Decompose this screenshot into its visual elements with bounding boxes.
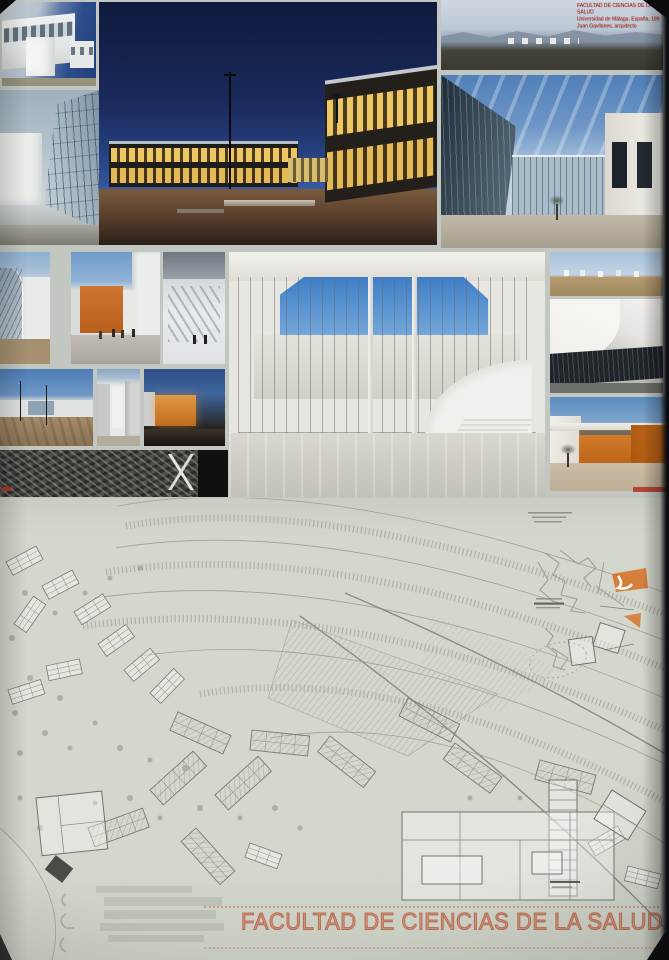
window-opening [612,142,627,188]
window-opening [637,142,652,188]
dirt-ground [0,339,50,364]
central-floor-plan [402,812,614,900]
dark-building-footprint [45,855,73,883]
small-tree [556,204,558,220]
site-plan-drawing [0,498,669,960]
paving [97,436,140,446]
column [412,277,417,434]
glowing-orange-wall [155,395,196,426]
photo-white-building-day [2,2,96,86]
credit-line-3: Juan Gavilanes, arquitecto [577,23,666,30]
curved-glass-wall [0,268,23,342]
photo-ceiling-detail [550,299,663,393]
photo-curved-glass-detail [0,252,50,364]
site-plan-svg [0,498,669,960]
pedestrians [112,329,115,337]
glass-wall [38,90,100,230]
photo-pavilions-field [550,252,663,296]
far-lit-facade [288,158,329,182]
side-wing [70,41,94,68]
upper-opening [163,252,225,279]
light-pole [229,72,231,189]
photo-orange-facade-dusk [144,369,225,446]
photo-interior-ramp [163,252,225,364]
dark-window-band [550,346,663,386]
white-pavilions [564,270,569,276]
photo-dusk-courtyard [99,2,437,245]
white-building [123,290,137,333]
sketch-legend-lines [528,512,572,608]
courtyard-ground [441,215,663,248]
people [193,335,196,344]
building-band [0,400,93,417]
column [368,277,373,434]
white-edge-wall [144,392,155,426]
bench [224,200,315,206]
glazed-wing-left [109,141,298,187]
dark-right-edge [660,0,669,960]
poles [20,381,21,421]
white-cube-volume [26,37,54,76]
bench [177,209,224,213]
ground [2,78,96,86]
dotted-rule-bottom [204,947,659,949]
small-tree [567,453,569,467]
photo-atrium-render [229,252,545,497]
plaza-ground [99,189,437,245]
photo-glass-curtain-wall [0,90,100,245]
glazed-wing-right [325,65,437,202]
photo-orange-street-view [71,252,160,364]
ground [0,225,100,245]
photo-white-alley [97,369,140,446]
sill [550,383,663,393]
white-tower [112,387,123,427]
palm-tree-silhouette [336,97,338,123]
photo-glazed-courtyard-tree [441,75,663,248]
sketch-plans [568,606,634,666]
ramp-steps [168,286,220,342]
orange-building [80,286,123,333]
faint-notes-block [96,886,224,942]
glass-facade-center [512,155,614,217]
small-floor-plan [36,791,108,856]
left-wall [97,384,110,436]
white-wall-right [605,113,663,217]
dirt-ground [0,417,93,446]
dark-ground [144,429,225,446]
photo-rubble-aerial [0,450,228,497]
poster-title: FACULTAD DE CIENCIAS DE LA SALUD [241,908,663,936]
white-building [23,277,50,340]
photo-orange-courtyard-render [550,397,669,491]
photo-campus-dirt-ground [0,369,93,446]
street [71,335,160,364]
dark-edge [198,450,228,497]
vertical-glyph-marks [60,894,74,952]
poster-photo: FACULTAD DE CIENCIAS DE LA SALUD Univers… [0,0,669,960]
white-arrow-mark [168,454,194,490]
right-wall [125,381,140,436]
glass-patch [28,401,54,415]
distant-buildings [508,38,579,44]
polished-floor [229,433,545,497]
red-mark [2,487,11,491]
credit-line-2: Universidad de Málaga, España, 199 [577,17,666,24]
white-volume [0,133,42,204]
orange-back-wall [579,435,634,465]
